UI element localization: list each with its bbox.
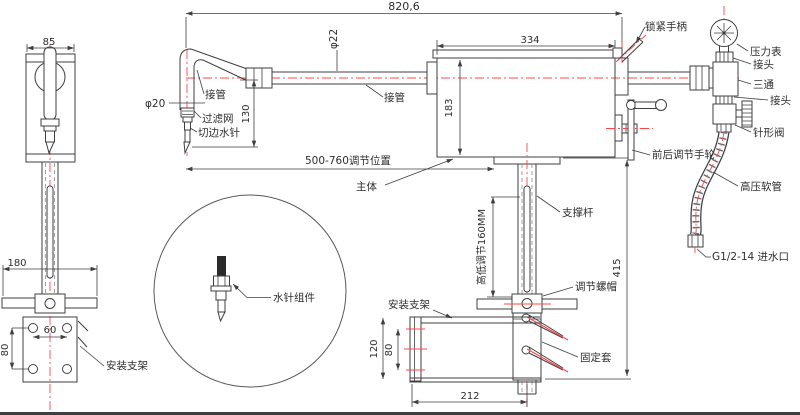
filter-screen-part xyxy=(181,108,194,117)
dim-120: 120 xyxy=(369,339,380,358)
label-joint-bottom: 接头 xyxy=(770,94,791,107)
water-needle-assembly-drawing: 85 180 60 80 安装支架 φ20 接管 过滤网 切边水针 xyxy=(0,0,800,415)
label-joint-top: 接头 xyxy=(753,58,774,71)
detail-circle xyxy=(154,195,346,387)
body-lid xyxy=(433,50,619,58)
label-pipe-left: 接管 xyxy=(205,88,226,101)
left-side-view: 85 180 60 80 安装支架 xyxy=(0,37,148,412)
dim-212: 212 xyxy=(460,391,479,402)
label-needle-assembly: 水针组件 xyxy=(273,291,315,304)
dim-80-front: 80 xyxy=(384,344,395,357)
cutting-needle-tip xyxy=(184,142,190,153)
label-fb-handwheel: 前后调节手轮 xyxy=(652,148,715,161)
label-water-inlet: G1/2-14 进水口 xyxy=(712,251,789,263)
high-pressure-hose xyxy=(695,132,724,236)
label-mount-bracket-front: 安装支架 xyxy=(388,298,430,311)
needle-tube-side xyxy=(44,47,56,120)
dim-183: 183 xyxy=(444,98,455,117)
label-main-body: 主体 xyxy=(356,181,377,193)
label-lock-handle: 锁紧手柄 xyxy=(645,20,687,33)
needle-tip-side xyxy=(46,142,54,153)
dim-60: 60 xyxy=(44,325,57,336)
label-dia20: φ20 xyxy=(145,98,165,110)
label-mount-bracket-left: 安装支架 xyxy=(106,359,148,372)
label-pipe-mid: 接管 xyxy=(384,91,405,104)
overall-dimension: 820,6 xyxy=(186,0,622,63)
dim-180: 180 xyxy=(7,258,26,269)
label-hp-hose: 高压软管 xyxy=(740,180,782,193)
dim-overall: 820,6 xyxy=(388,0,420,13)
front-view-pipe: φ20 接管 过滤网 切边水针 130 φ22 接管 xyxy=(145,29,742,156)
label-adjust-nut: 调节螺帽 xyxy=(575,280,617,293)
needle-assembly-top xyxy=(217,256,226,276)
label-fixing-sleeve: 固定套 xyxy=(580,351,612,364)
label-trim-water-needle: 切边水针 xyxy=(198,126,240,139)
dim-415: 415 xyxy=(612,258,623,277)
dim-80-left: 80 xyxy=(0,344,11,357)
detail-view: 水针组件 xyxy=(154,195,346,387)
label-support-rod: 支撑杆 xyxy=(562,206,594,219)
dim-130: 130 xyxy=(241,104,252,123)
handwheel-knob xyxy=(656,100,667,111)
label-filter-screen: 过滤网 xyxy=(202,112,234,125)
inlet-fitting xyxy=(688,235,703,247)
label-dia22: φ22 xyxy=(328,29,340,49)
tee-part xyxy=(713,62,738,96)
main-body-view: 334 183 500-760调节位置 主体 高低调节160MM 支撑杆 调节螺… xyxy=(186,35,631,410)
dim-85: 85 xyxy=(43,37,56,48)
label-pressure-gauge: 压力表 xyxy=(750,45,782,58)
needle-valve-body xyxy=(713,104,736,124)
main-body-box xyxy=(437,58,615,157)
engineering-drawing-page: 85 180 60 80 安装支架 φ20 接管 过滤网 切边水针 xyxy=(0,0,800,415)
label-adjust-range: 500-760调节位置 xyxy=(305,154,391,167)
dim-334: 334 xyxy=(520,35,539,46)
label-tee: 三通 xyxy=(753,79,774,91)
dim-height-adjust: 高低调节160MM xyxy=(475,209,488,285)
right-assembly: 锁紧手柄 压力表 接头 三通 接头 针形阀 xyxy=(606,6,791,263)
label-needle-valve: 针形阀 xyxy=(753,126,785,139)
